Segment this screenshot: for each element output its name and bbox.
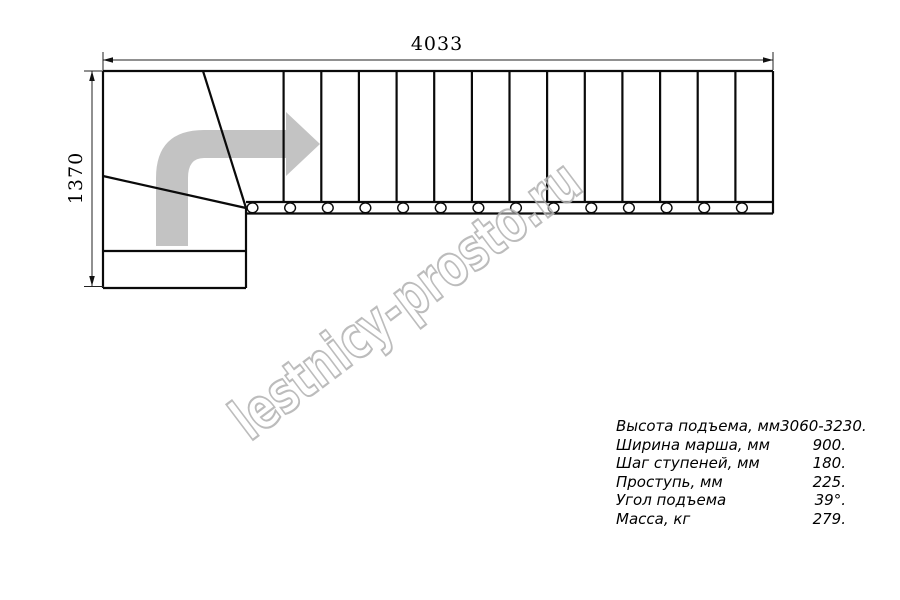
arrowhead-left-icon [103, 57, 113, 63]
bolt-circle-icon [661, 203, 672, 213]
bolt-circle-icon [247, 203, 258, 213]
spec-label: Проступь, мм [616, 473, 723, 492]
spec-row: Угол подъема39°. [616, 491, 846, 510]
spec-value: 3060-3230. [780, 417, 867, 436]
specifications-table: Высота подъема, мм3060-3230.Ширина марша… [616, 417, 846, 529]
bolt-circle-icon [624, 203, 635, 213]
spec-row: Высота подъема, мм3060-3230. [616, 417, 846, 436]
arrowhead-up-icon [89, 71, 95, 81]
arrowhead-down-icon [89, 276, 95, 286]
bolt-circle-icon [360, 203, 371, 213]
spec-value: 39°. [815, 491, 846, 510]
spec-value: 180. [813, 454, 846, 473]
width-dimension-label: 4033 [387, 33, 487, 55]
bolt-circle-icon [285, 203, 296, 213]
bolt-circle-icon [737, 203, 748, 213]
bolt-circle-icon [322, 203, 333, 213]
spec-value: 279. [813, 510, 846, 529]
spec-label: Шаг ступеней, мм [616, 454, 760, 473]
spec-label: Высота подъема, мм [616, 417, 780, 436]
spec-value: 225. [813, 473, 846, 492]
spec-row: Ширина марша, мм900. [616, 436, 846, 455]
bolt-circle-icon [435, 203, 446, 213]
spec-row: Масса, кг279. [616, 510, 846, 529]
arrowhead-right-icon [763, 57, 773, 63]
spec-label: Ширина марша, мм [616, 436, 770, 455]
spec-row: Проступь, мм225. [616, 473, 846, 492]
spec-value: 900. [813, 436, 846, 455]
height-dimension-label: 1370 [65, 148, 87, 208]
spec-row: Шаг ступеней, мм180. [616, 454, 846, 473]
bolt-circle-icon [398, 203, 409, 213]
bolt-circle-icon [699, 203, 710, 213]
spec-label: Угол подъема [616, 491, 726, 510]
spec-label: Масса, кг [616, 510, 690, 529]
staircase-drawing-page: 4033 1370 lestnicy-prosto.ru Высота подъ… [0, 0, 900, 600]
